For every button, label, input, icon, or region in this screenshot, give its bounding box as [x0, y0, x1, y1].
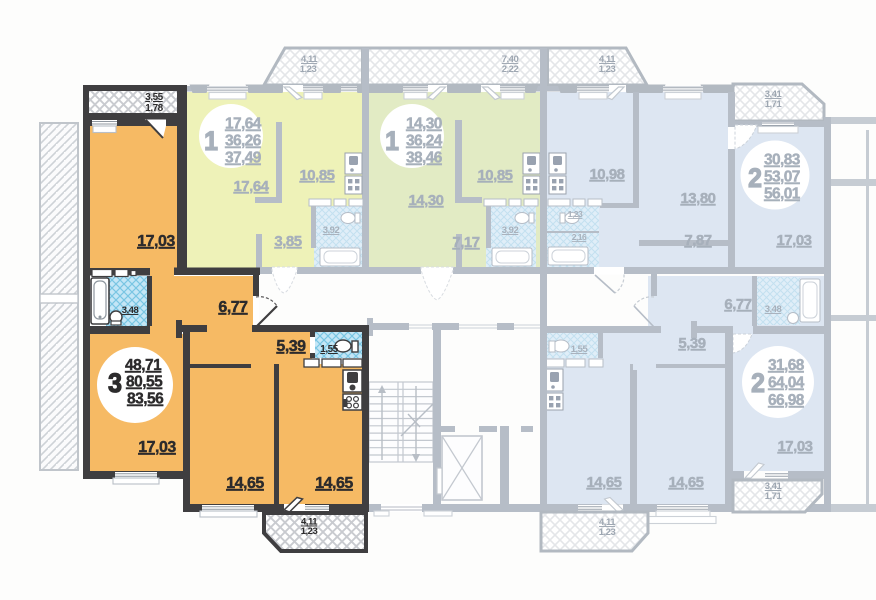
svg-text:1,23: 1,23 — [568, 209, 583, 219]
svg-text:14,65: 14,65 — [668, 474, 703, 491]
svg-text:38,46: 38,46 — [406, 150, 443, 167]
svg-text:53,07: 53,07 — [764, 169, 800, 186]
svg-text:17,03: 17,03 — [777, 438, 812, 455]
svg-text:2: 2 — [751, 369, 765, 398]
svg-text:3,92: 3,92 — [323, 225, 340, 236]
svg-text:17,64: 17,64 — [233, 178, 269, 195]
svg-text:3,48: 3,48 — [122, 305, 139, 316]
svg-text:1,55: 1,55 — [320, 344, 338, 355]
svg-text:1,23: 1,23 — [300, 64, 317, 75]
svg-text:14,30: 14,30 — [408, 192, 443, 209]
svg-text:5,39: 5,39 — [276, 338, 306, 355]
svg-text:37,49: 37,49 — [225, 150, 262, 167]
svg-text:14,65: 14,65 — [586, 474, 621, 491]
svg-text:10,98: 10,98 — [589, 166, 624, 183]
svg-text:64,04: 64,04 — [768, 375, 805, 392]
svg-text:1,71: 1,71 — [765, 491, 783, 502]
svg-text:1,71: 1,71 — [765, 99, 783, 110]
svg-text:5,39: 5,39 — [678, 335, 705, 352]
svg-text:10,85: 10,85 — [477, 167, 512, 184]
svg-text:17,03: 17,03 — [776, 232, 811, 249]
svg-text:56,01: 56,01 — [764, 186, 801, 203]
svg-text:1: 1 — [385, 127, 399, 156]
svg-text:3,92: 3,92 — [502, 225, 519, 236]
svg-text:1,23: 1,23 — [599, 527, 616, 538]
svg-text:17,64: 17,64 — [225, 116, 262, 133]
svg-text:14,30: 14,30 — [406, 116, 442, 133]
svg-text:1,23: 1,23 — [301, 526, 318, 537]
svg-text:7,17: 7,17 — [452, 234, 479, 251]
svg-text:6,77: 6,77 — [724, 296, 751, 313]
svg-text:14,65: 14,65 — [315, 475, 353, 492]
svg-text:13,80: 13,80 — [680, 190, 715, 207]
svg-text:3,48: 3,48 — [765, 304, 782, 315]
svg-text:30,83: 30,83 — [764, 152, 801, 169]
svg-text:3,55: 3,55 — [145, 92, 163, 103]
svg-text:80,55: 80,55 — [126, 374, 163, 391]
svg-text:1,78: 1,78 — [145, 103, 163, 114]
svg-text:31,68: 31,68 — [768, 357, 805, 374]
svg-text:1,55: 1,55 — [571, 344, 589, 355]
svg-text:2,22: 2,22 — [502, 64, 519, 75]
svg-text:3,85: 3,85 — [274, 233, 301, 250]
svg-text:2,16: 2,16 — [572, 232, 587, 242]
svg-text:7,87: 7,87 — [684, 232, 711, 249]
svg-text:48,71: 48,71 — [125, 357, 162, 374]
svg-text:3: 3 — [108, 369, 122, 398]
svg-text:17,03: 17,03 — [138, 439, 176, 456]
svg-text:2: 2 — [748, 164, 762, 193]
svg-text:1,23: 1,23 — [599, 64, 616, 75]
svg-text:36,26: 36,26 — [225, 133, 262, 150]
svg-text:66,98: 66,98 — [768, 392, 805, 409]
svg-text:6,77: 6,77 — [218, 299, 248, 316]
svg-text:1: 1 — [204, 127, 218, 156]
svg-text:14,65: 14,65 — [226, 475, 264, 492]
svg-text:17,03: 17,03 — [137, 233, 175, 250]
svg-text:83,56: 83,56 — [127, 391, 164, 408]
svg-text:36,24: 36,24 — [406, 133, 443, 150]
svg-text:10,85: 10,85 — [299, 167, 334, 184]
